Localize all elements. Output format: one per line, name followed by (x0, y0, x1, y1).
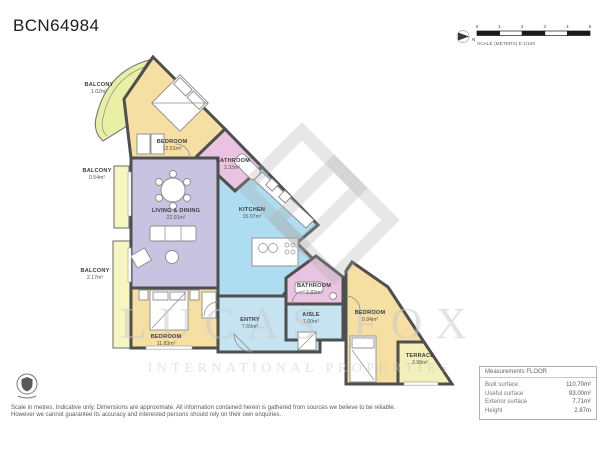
label-balcony-mid: BALCONY (82, 168, 111, 174)
measurement-value: 7.71m² (572, 398, 591, 407)
north-arrow-icon: N (457, 31, 475, 43)
area-bedroom-left: 11.83m² (157, 341, 176, 347)
sofa (150, 226, 196, 241)
room-balcony-mid (114, 166, 129, 228)
watermark-text-2: INTERNATIONAL PROPERTIES (148, 361, 453, 376)
scale-tick-1: 1 (498, 24, 501, 29)
label-terrace: TERRACE (406, 353, 435, 359)
area-aisle: 7.00m² (303, 319, 319, 325)
label-kitchen: KITCHEN (239, 207, 265, 213)
scale-tick-0: 0 (476, 24, 479, 29)
measurement-row: Built surface 110.70m² (485, 381, 591, 390)
label-living: LIVING & DINING (152, 208, 200, 214)
label-balcony-top: BALCONY (84, 82, 113, 88)
coffee-table (166, 251, 179, 264)
dining-table (161, 178, 185, 202)
wardrobe-top-1 (137, 134, 150, 154)
window-living-1 (128, 172, 131, 216)
measurement-row: Exterior surface 7.71m² (485, 398, 591, 407)
area-terrace: 3.98m² (412, 360, 428, 366)
area-balcony-top: 1.02m² (91, 89, 107, 95)
area-bathroom-low: 2.82m² (306, 290, 322, 296)
scale-tick-4: 4 (566, 24, 569, 29)
area-living: 22.91m² (166, 215, 185, 221)
scale-tick-5: 5 (589, 24, 592, 29)
disclaimer-line-2: However we cannot guarantee its accuracy… (11, 412, 395, 419)
scale-tick-3: 3 (544, 24, 547, 29)
label-bedroom-left: BEDROOM (151, 334, 182, 340)
label-bathroom-low: BATHROOM (297, 283, 331, 289)
label-entry: ENTRY (240, 317, 260, 323)
measurement-label: Height (485, 407, 502, 416)
label-bathroom-top: BATHROOM (216, 158, 250, 164)
measurement-value: 110.70m² (566, 381, 591, 390)
page-title: BCN64984 (13, 16, 99, 36)
scale-tick-2: 2 (521, 24, 524, 29)
disclaimer-line-1: Scale in metres. Indicative only. Dimens… (11, 405, 395, 412)
scale-caption: SCALE (METERS) E:1/100 (477, 41, 535, 47)
label-bedroom-right: BEDROOM (355, 310, 386, 316)
area-kitchen: 15.07m² (242, 214, 261, 220)
scale-bar: 0 1 2 3 4 5 SCALE (METERS) E:1/100 (476, 24, 592, 47)
measurement-label: Exterior surface (485, 398, 527, 407)
window-living-2 (128, 248, 131, 282)
floorplan-page: BCN64984 (0, 0, 600, 450)
area-balcony-mid: 0.54m² (89, 175, 105, 181)
area-bedroom-right: 9.84m² (362, 317, 378, 323)
disclaimer-text: Scale in metres. Indicative only. Dimens… (11, 405, 395, 419)
area-entry: 7.69m² (242, 324, 258, 330)
measurement-row: Height 2.87m (485, 407, 591, 416)
svg-text:N: N (472, 37, 475, 42)
label-bedroom-top: BEDROOM (157, 139, 188, 145)
measurement-value: 93.00m² (569, 390, 591, 399)
window-terrace (404, 382, 438, 385)
area-bedroom-top: 12.51m² (162, 146, 181, 152)
label-aisle: AISLE (302, 312, 320, 318)
measurements-box: Measurements FLOOR Built surface 110.70m… (479, 366, 597, 420)
measurement-row: Useful surface 93.00m² (485, 390, 591, 399)
area-bathroom-top: 3.33m² (224, 165, 240, 171)
label-balcony-low: BALCONY (80, 268, 109, 274)
measurement-label: Useful surface (485, 390, 523, 399)
lucasfox-logo (12, 371, 44, 403)
measurement-label: Built surface (485, 381, 518, 390)
measurement-value: 2.87m (574, 407, 591, 416)
measurements-header: Measurements FLOOR (480, 367, 596, 378)
area-balcony-low: 2.17m² (87, 275, 103, 281)
